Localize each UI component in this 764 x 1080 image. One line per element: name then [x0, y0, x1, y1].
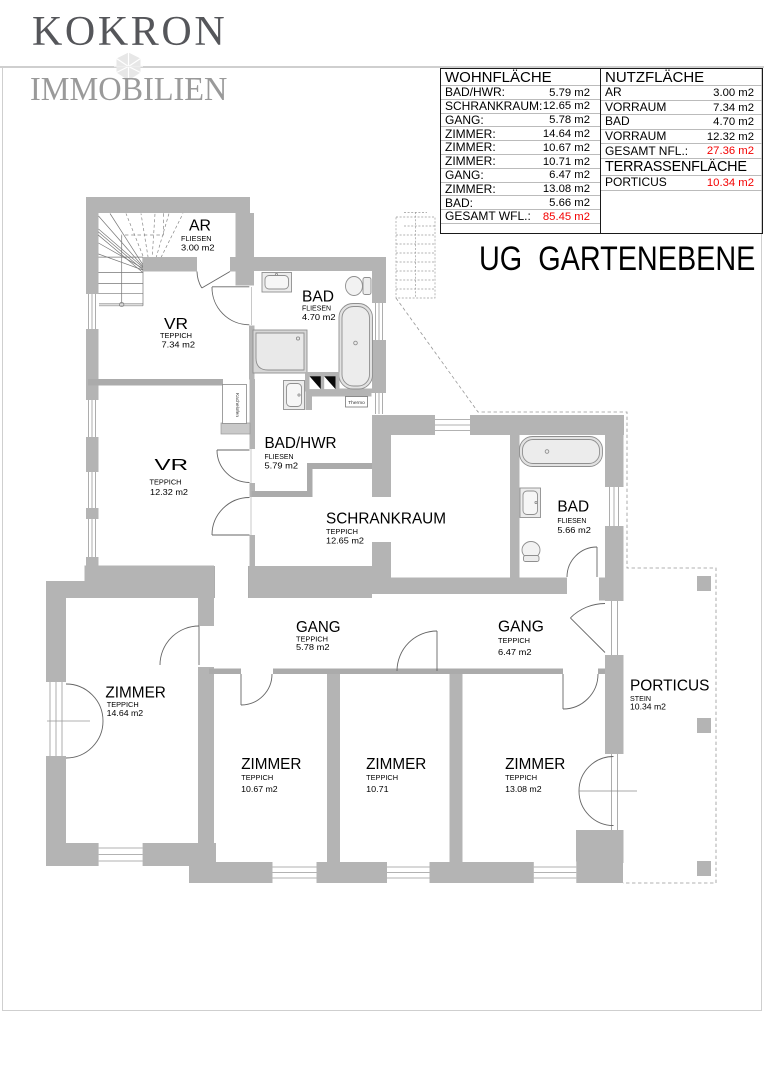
svg-text:ZIMMER: ZIMMER	[505, 756, 565, 773]
svg-text:5.66 m2: 5.66 m2	[557, 525, 591, 535]
svg-text:TEPPICH: TEPPICH	[366, 773, 398, 782]
svg-text:BAD/HWR: BAD/HWR	[265, 435, 337, 452]
svg-text:10.71: 10.71	[366, 784, 389, 794]
svg-text:12.65 m2: 12.65 m2	[326, 536, 364, 546]
svg-text:FLIESEN: FLIESEN	[557, 516, 586, 525]
svg-text:VR: VR	[155, 457, 189, 474]
svg-text:TEPPICH: TEPPICH	[150, 478, 182, 487]
svg-text:TEPPICH: TEPPICH	[498, 636, 530, 645]
svg-text:PORTICUS: PORTICUS	[630, 677, 709, 694]
svg-text:10.34 m2: 10.34 m2	[630, 702, 666, 712]
svg-text:Thermo: Thermo	[348, 400, 365, 406]
svg-text:AR: AR	[189, 218, 211, 235]
svg-text:13.08 m2: 13.08 m2	[505, 784, 542, 794]
svg-text:4.70 m2: 4.70 m2	[302, 312, 336, 322]
svg-text:6.47 m2: 6.47 m2	[498, 647, 532, 657]
svg-text:12.32 m2: 12.32 m2	[150, 487, 188, 497]
svg-text:TEPPICH: TEPPICH	[505, 773, 537, 782]
svg-text:BAD: BAD	[557, 499, 589, 516]
svg-text:TEPPICH: TEPPICH	[241, 773, 273, 782]
svg-text:SCHRANKRAUM: SCHRANKRAUM	[326, 511, 446, 528]
svg-text:ZIMMER: ZIMMER	[366, 756, 426, 773]
svg-text:GANG: GANG	[498, 619, 544, 636]
svg-text:Kachelofen: Kachelofen	[234, 393, 240, 417]
svg-text:ZIMMER: ZIMMER	[241, 756, 301, 773]
svg-text:5.78 m2: 5.78 m2	[296, 642, 330, 652]
svg-text:5.79 m2: 5.79 m2	[265, 460, 299, 470]
svg-text:10.67 m2: 10.67 m2	[241, 784, 278, 794]
svg-text:14.64 m2: 14.64 m2	[107, 708, 144, 718]
svg-text:7.34 m2: 7.34 m2	[162, 339, 196, 349]
svg-text:3.00 m2: 3.00 m2	[181, 243, 215, 253]
